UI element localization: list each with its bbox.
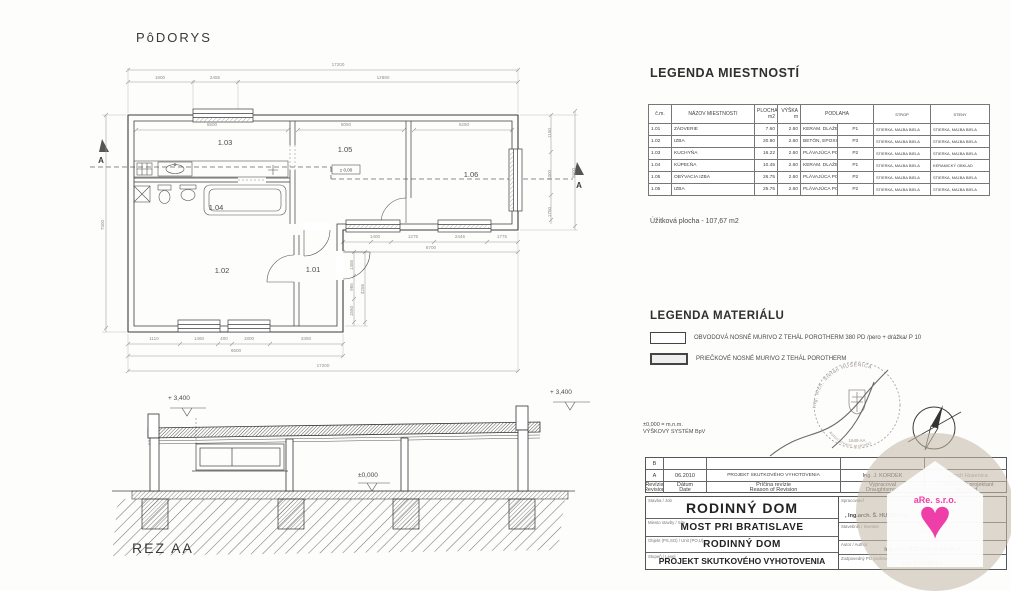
north-needle <box>931 405 943 428</box>
cell-floor: KERAM. DLAŽBA <box>801 124 838 136</box>
room-number-label: 1.04 <box>209 203 224 212</box>
cell-code: P2 <box>837 148 874 160</box>
room-number-label: 1.06 <box>464 170 479 179</box>
col-ceiling: STROP <box>874 105 931 124</box>
cell-walls: STIERKA, MAĽBA BIELA <box>931 148 990 160</box>
room-legend-body: 1.01ZÁDVERIE7.602.60KERAM. DLAŽBAP1STIER… <box>649 124 990 196</box>
dimension-label: 5500 <box>207 122 218 127</box>
room-number-label: 1.03 <box>218 138 233 147</box>
field-label: Objekt (PS,SO) / Unit (PO,U) <box>648 538 703 543</box>
field-unit: Objekt (PS,SO) / Unit (PO,U) RODINNÝ DOM <box>646 537 838 553</box>
cell-area: 16.22 <box>755 148 778 160</box>
stamp-number: 1649 AA <box>848 438 865 443</box>
cell-walls: STIERKA, MAĽBA BIELA <box>931 172 990 184</box>
dimension-label: 1775 <box>497 234 508 239</box>
level-value: PROJEKT SKUTKOVÉHO VYHOTOVENIA <box>659 556 826 566</box>
level-zero: ±0,000 <box>358 472 378 479</box>
rev-col-label: Dátum Date <box>664 482 707 493</box>
field-job: Stavba / Job RODINNÝ DOM <box>646 497 838 519</box>
material-item: OBVODOVÁ NOSNÉ MURIVO Z TEHÁL POROTHERM … <box>650 332 1010 344</box>
cell-floor: KERAM. DLAŽBA <box>801 160 838 172</box>
unit-value: RODINNÝ DOM <box>703 539 781 550</box>
material-label: OBVODOVÁ NOSNÉ MURIVO Z TEHÁL POROTHERM … <box>694 335 921 341</box>
dimension-label: 17200 <box>317 363 330 368</box>
cell-area: 10.45 <box>755 160 778 172</box>
cell-code: P2 <box>837 184 874 196</box>
scanned-architectural-drawing: { "drawing": { "plan_title": "PôDORYS", … <box>0 0 1011 570</box>
section-title: REZ AA <box>132 540 194 556</box>
room-legend-row: 1.04KÚPEĽŇA10.452.60KERAM. DLAŽBAP1STIER… <box>649 160 990 172</box>
rev-letter: A <box>646 470 664 482</box>
title-block-left: Stavba / Job RODINNÝ DOM Miesto stavby /… <box>646 497 839 569</box>
cell-code: P3 <box>837 136 874 148</box>
cell-walls: STIERKA, MAĽBA BIELA <box>931 124 990 136</box>
label-en: Revision <box>646 488 664 492</box>
dimension-chains <box>104 68 577 373</box>
cell-floor: BETÓN, EPOXID. NÁTER <box>801 136 838 148</box>
cell-ceiling: STIERKA, MAĽBA BIELA <box>874 172 931 184</box>
dimension-label: 7300 <box>100 219 105 230</box>
label-en: Reason of Revision <box>750 488 798 492</box>
cell-name: KUCHYŇA <box>672 148 755 160</box>
job-value: RODINNÝ DOM <box>686 500 798 516</box>
dimension-label: 1400 <box>370 234 381 239</box>
dimension-label: 4255 <box>360 283 365 294</box>
section-walls <box>148 406 528 491</box>
cell-num: 1.05 <box>649 184 672 196</box>
cell-code: P1 <box>837 124 874 136</box>
rev-col-label: Revízia Revision <box>646 482 664 493</box>
col-area: PLOCHA m2 <box>755 105 778 124</box>
rev-desc: PROJEKT SKUTKOVÉHO VYHOTOVENIA <box>707 470 841 482</box>
cell-name: IZBA <box>672 136 755 148</box>
dimension-label: 12890 <box>377 75 390 80</box>
cell-code: P2 <box>837 172 874 184</box>
room-legend-row: 1.05IZBA25.752.60PLÁVAJÚCA PODLAHAP2STIE… <box>649 184 990 196</box>
rev-letter: B <box>646 458 664 470</box>
room-legend-row: 1.01ZÁDVERIE7.602.60KERAM. DLAŽBAP1STIER… <box>649 124 990 136</box>
dimension-label: 3350 <box>301 336 312 341</box>
material-swatch-exterior <box>650 332 686 344</box>
material-swatch-partition <box>650 353 688 365</box>
dimension-label: 17200 <box>332 62 345 67</box>
cell-height: 2.60 <box>778 136 801 148</box>
cell-name: KÚPEĽŇA <box>672 160 755 172</box>
cell-floor: PLÁVAJÚCA PODLAHA <box>801 184 838 196</box>
room-legend-row: 1.03KUCHYŇA16.222.60PLÁVAJÚCA PODLAHAP2S… <box>649 148 990 160</box>
cell-height: 2.60 <box>778 160 801 172</box>
dimension-label: 1110 <box>149 336 159 341</box>
cell-floor: PLÁVAJÚCA PODLAHA <box>801 148 838 160</box>
field-level: Stupeň / Level PROJEKT SKUTKOVÉHO VYHOTO… <box>646 553 838 569</box>
room-number-label: 1.02 <box>215 266 230 275</box>
room-legend-header: č.m. NÁZOV MIESTNOSTI PLOCHA m2 VÝŠKA m … <box>649 105 990 124</box>
cell-num: 1.02 <box>649 136 672 148</box>
cell-name: OBÝVACIA IZBA <box>672 172 755 184</box>
cell-ceiling: STIERKA, MAĽBA BIELA <box>874 148 931 160</box>
section-marker-right: A <box>576 181 582 190</box>
watermark-heart-icon: ♥ <box>887 489 983 549</box>
dimension-label: 1150 <box>547 128 552 138</box>
material-legend-title: LEGENDA MATERIÁLU <box>650 310 784 322</box>
dimension-labels: 1720018002455128905500505052501150240017… <box>100 62 576 368</box>
field-site: Miesto stavby / Site MOST PRI BRATISLAVE <box>646 519 838 537</box>
cell-area: 20.90 <box>755 136 778 148</box>
dimension-label: 1750 <box>547 206 552 217</box>
cell-walls: KERAMICKÝ OBKLAD <box>931 160 990 172</box>
section-marker-left: A <box>98 156 104 165</box>
cell-num: 1.05 <box>649 172 672 184</box>
level-right: + 3,400 <box>550 389 572 396</box>
dimension-label: 965 <box>349 283 354 291</box>
dimension-label: 1275 <box>408 234 419 239</box>
floor-plan-drawing: A A <box>88 55 608 385</box>
dimension-label: 400 <box>220 336 228 341</box>
rev-date <box>664 458 707 470</box>
room-legend-table: č.m. NÁZOV MIESTNOSTI PLOCHA m2 VÝŠKA m … <box>648 104 990 196</box>
cell-num: 1.01 <box>649 124 672 136</box>
elevation-note-line1: ±0,000 = m.n.m. <box>643 422 705 429</box>
room-number-label: 1.05 <box>338 145 353 154</box>
cell-ceiling: STIERKA, MAĽBA BIELA <box>874 124 931 136</box>
level-left: + 3,400 <box>168 395 190 402</box>
field-label: Stavba / Job <box>648 498 672 503</box>
rev-date: 06.2010 <box>664 470 707 482</box>
dimension-label: 1800 <box>244 336 255 341</box>
col-num: č.m. <box>649 105 672 124</box>
dimension-label: 1460 <box>194 336 205 341</box>
doors <box>267 198 406 282</box>
dimension-label: 5250 <box>459 122 470 127</box>
col-area-unit: m2 <box>768 114 775 120</box>
col-name: NÁZOV MIESTNOSTI <box>672 105 755 124</box>
section-drawing: + 3,400 + 3,400 ±0,000 <box>110 378 610 563</box>
label-en: Date <box>679 488 691 492</box>
rev-desc <box>707 458 841 470</box>
cell-num: 1.04 <box>649 160 672 172</box>
dimension-label: 2400 <box>547 169 552 180</box>
col-height-unit: m <box>794 114 798 120</box>
col-height: VÝŠKA m <box>778 105 801 124</box>
cell-area: 7.60 <box>755 124 778 136</box>
dimension-label: 5800 <box>571 167 576 178</box>
cell-ceiling: STIERKA, MAĽBA BIELA <box>874 160 931 172</box>
dimension-label: 1455 <box>349 259 354 270</box>
watermark-logo: aRe. s.r.o. ♥ <box>856 433 1011 591</box>
rev-col-label: Príčina revízie Reason of Revision <box>707 482 841 493</box>
plan-level-marker: ± 0,00 <box>332 165 360 174</box>
cell-height: 2.60 <box>778 184 801 196</box>
cell-walls: STIERKA, MAĽBA BIELA <box>931 136 990 148</box>
field-label: Stupeň / Level <box>648 554 675 559</box>
dimension-label: 2445 <box>455 234 466 239</box>
dimension-label: 6700 <box>426 245 437 250</box>
cell-area: 26.75 <box>755 172 778 184</box>
usable-area-note: Úžitková plocha - 107,67 m2 <box>650 218 739 225</box>
section-arrow-left <box>99 139 109 152</box>
room-legend-row: 1.05OBÝVACIA IZBA26.752.60PLÁVAJÚCA PODL… <box>649 172 990 184</box>
cell-height: 2.60 <box>778 148 801 160</box>
roof-slab <box>148 422 540 444</box>
kitchen-fixtures <box>134 161 288 177</box>
cell-ceiling: STIERKA, MAĽBA BIELA <box>874 184 931 196</box>
col-walls: STENY <box>931 105 990 124</box>
cell-name: ZÁDVERIE <box>672 124 755 136</box>
room-legend-row: 1.02IZBA20.902.60BETÓN, EPOXID. NÁTERP3S… <box>649 136 990 148</box>
svg-text:± 0,00: ± 0,00 <box>340 168 353 173</box>
cell-floor: PLÁVAJÚCA PODLAHA <box>801 172 838 184</box>
cell-name: IZBA <box>672 184 755 196</box>
watermark-house-icon: aRe. s.r.o. ♥ <box>887 461 983 567</box>
site-value: MOST PRI BRATISLAVE <box>680 522 803 533</box>
cell-ceiling: STIERKA, MAĽBA BIELA <box>874 136 931 148</box>
cell-code: P1 <box>837 160 874 172</box>
room-number-label: 1.01 <box>306 265 321 274</box>
dimension-label: 1550 <box>349 305 354 316</box>
dimension-label: 6500 <box>231 348 242 353</box>
col-floor: PODLAHA <box>801 105 874 124</box>
wall-openings-dashed <box>238 145 295 180</box>
field-label: Miesto stavby / Site <box>648 520 685 525</box>
cell-height: 2.60 <box>778 124 801 136</box>
floor-slab <box>132 491 568 499</box>
elevation-note: ±0,000 = m.n.m. VÝŠKOVÝ SYSTÉM BpV <box>643 422 705 436</box>
stamp-arc-text: Ing. arch. Štefan HUSENICA <box>812 362 873 408</box>
elevation-note-line2: VÝŠKOVÝ SYSTÉM BpV <box>643 429 705 436</box>
cell-walls: STIERKA, MAĽBA BIELA <box>931 184 990 196</box>
dimension-label: 2455 <box>210 75 221 80</box>
dimension-label: 5050 <box>341 122 352 127</box>
cell-num: 1.03 <box>649 148 672 160</box>
cell-height: 2.60 <box>778 172 801 184</box>
dimension-label: 1800 <box>155 75 166 80</box>
room-legend-title: LEGENDA MIESTNOSTÍ <box>650 66 800 80</box>
plan-title: PôDORYS <box>136 30 212 45</box>
cell-area: 25.75 <box>755 184 778 196</box>
